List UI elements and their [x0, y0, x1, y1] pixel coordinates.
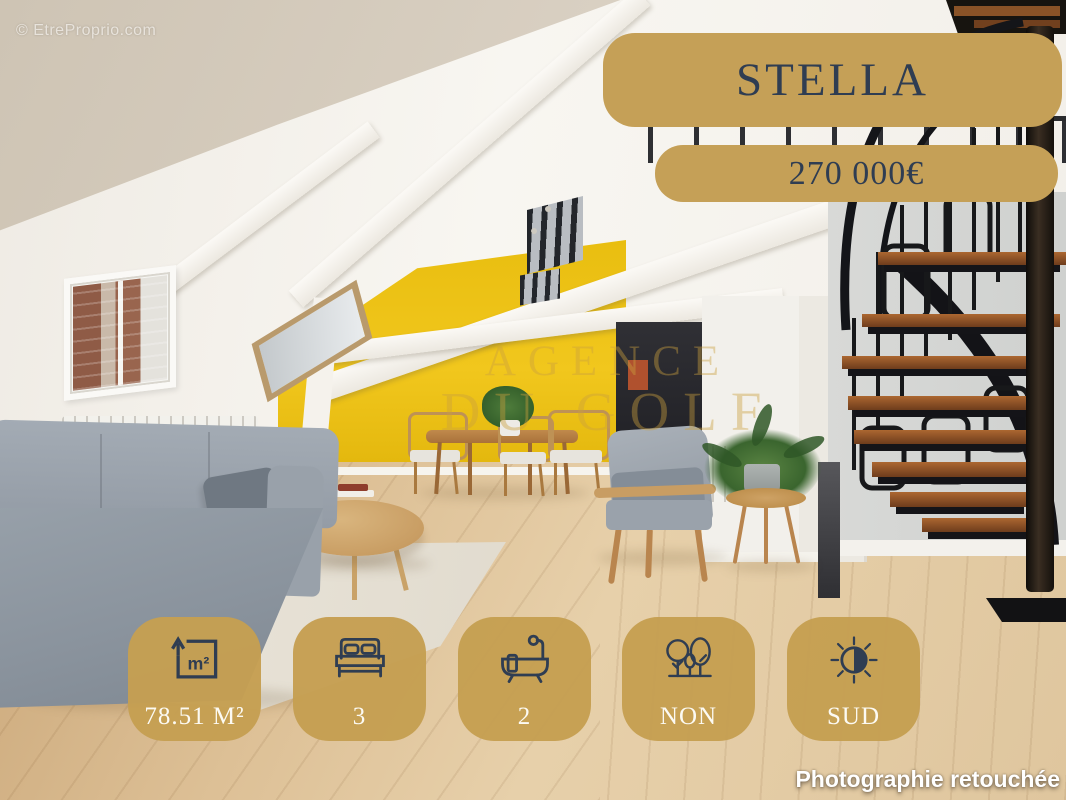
- table-leg: [468, 443, 472, 495]
- agency-watermark-line2: DU GOLF: [408, 384, 808, 440]
- badge-surface: m² 78.51 M²: [128, 617, 261, 741]
- price-badge: 270 000€: [655, 145, 1058, 202]
- exposure-value: SUD: [827, 704, 880, 729]
- side-table: [726, 488, 806, 508]
- bath-icon: [495, 630, 555, 690]
- ceiling-spotlight: [531, 228, 537, 234]
- window-mullion: [118, 281, 123, 386]
- sun-icon: [824, 630, 884, 690]
- site-watermark: © EtreProprio.com: [16, 22, 156, 40]
- badge-garden: NON: [622, 617, 755, 741]
- badge-bathrooms: 2: [458, 617, 591, 741]
- dining-chair-seat: [410, 450, 460, 462]
- sofa-cushion-seam: [100, 434, 102, 516]
- book: [338, 484, 368, 491]
- dining-chair-seat: [500, 452, 546, 464]
- m2-glyph: m²: [187, 653, 209, 673]
- side-table-leg: [764, 506, 768, 564]
- agency-watermark: AGENCE DU GOLF: [408, 340, 808, 440]
- property-name-badge: STELLA: [603, 33, 1062, 127]
- garden-value: NON: [660, 704, 717, 729]
- dining-chair-seat: [550, 450, 602, 463]
- agency-watermark-line1: AGENCE: [408, 340, 808, 384]
- badge-bedrooms: 3: [293, 617, 426, 741]
- wall-window: [64, 265, 176, 401]
- area-m2-icon: m²: [165, 630, 225, 690]
- ceiling-spotlight: [545, 206, 551, 212]
- badge-exposure: SUD: [787, 617, 920, 741]
- bathrooms-value: 2: [518, 704, 532, 729]
- bedrooms-value: 3: [353, 704, 367, 729]
- bed-icon: [330, 630, 390, 690]
- trees-icon: [659, 630, 719, 690]
- chair-leg: [554, 463, 557, 495]
- shadow: [726, 560, 816, 572]
- retouched-photo-label: Photographie retouchée: [795, 766, 1060, 793]
- chair-leg: [414, 462, 417, 494]
- surface-value: 78.51 M²: [144, 704, 244, 729]
- table-leg: [352, 552, 357, 600]
- listing-photo: © EtreProprio.com AGENCE DU GOLF STELLA …: [0, 0, 1066, 800]
- armchair-seat: [606, 500, 712, 530]
- chair-leg: [504, 464, 507, 496]
- window-glass: [73, 275, 167, 391]
